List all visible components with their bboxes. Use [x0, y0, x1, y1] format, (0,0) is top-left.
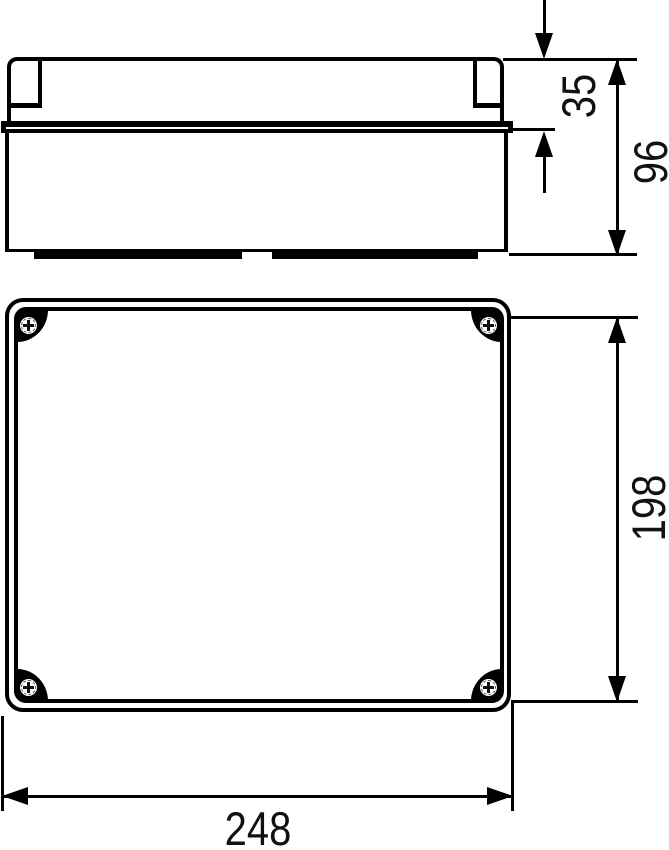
lid-profile	[7, 57, 504, 121]
lid-inner-outline	[14, 307, 504, 703]
phillips-screw-head-icon	[480, 679, 497, 696]
screw-cross-icon	[487, 682, 490, 693]
box-body	[5, 133, 508, 252]
dimension-line	[2, 795, 513, 798]
dimension-line	[616, 317, 619, 702]
dimension-label-total-height: 96	[630, 111, 669, 213]
technical-drawing-canvas: 35 96	[0, 0, 669, 850]
arrowhead-up-icon	[608, 317, 626, 343]
arrow-tail-lower	[543, 157, 546, 193]
lid-clip-right	[473, 57, 504, 108]
foot-bar-right	[272, 251, 478, 259]
dimension-label-width: 248	[190, 806, 326, 850]
screw-cross-icon	[487, 320, 490, 331]
extension-line-bottom	[509, 253, 637, 256]
lid-clip-left	[7, 57, 42, 108]
lid-flange	[1, 121, 513, 133]
dimension-line	[616, 59, 619, 256]
arrowhead-down-icon	[535, 33, 553, 59]
phillips-screw-head-icon	[20, 679, 37, 696]
dimension-label-lid-height: 35	[558, 54, 598, 139]
arrowhead-left-icon	[2, 787, 28, 805]
arrowhead-down-icon	[608, 676, 626, 702]
phillips-screw-head-icon	[20, 317, 37, 334]
arrowhead-right-icon	[487, 787, 513, 805]
flange-groove	[6, 127, 508, 129]
arrowhead-up-icon	[535, 131, 553, 157]
arrowhead-up-icon	[608, 59, 626, 85]
screw-cross-icon	[27, 320, 30, 331]
phillips-screw-head-icon	[480, 317, 497, 334]
foot-bar-left	[34, 251, 242, 259]
dimension-label-length: 198	[628, 457, 668, 559]
arrow-tail-upper	[543, 0, 546, 34]
screw-cross-icon	[27, 682, 30, 693]
